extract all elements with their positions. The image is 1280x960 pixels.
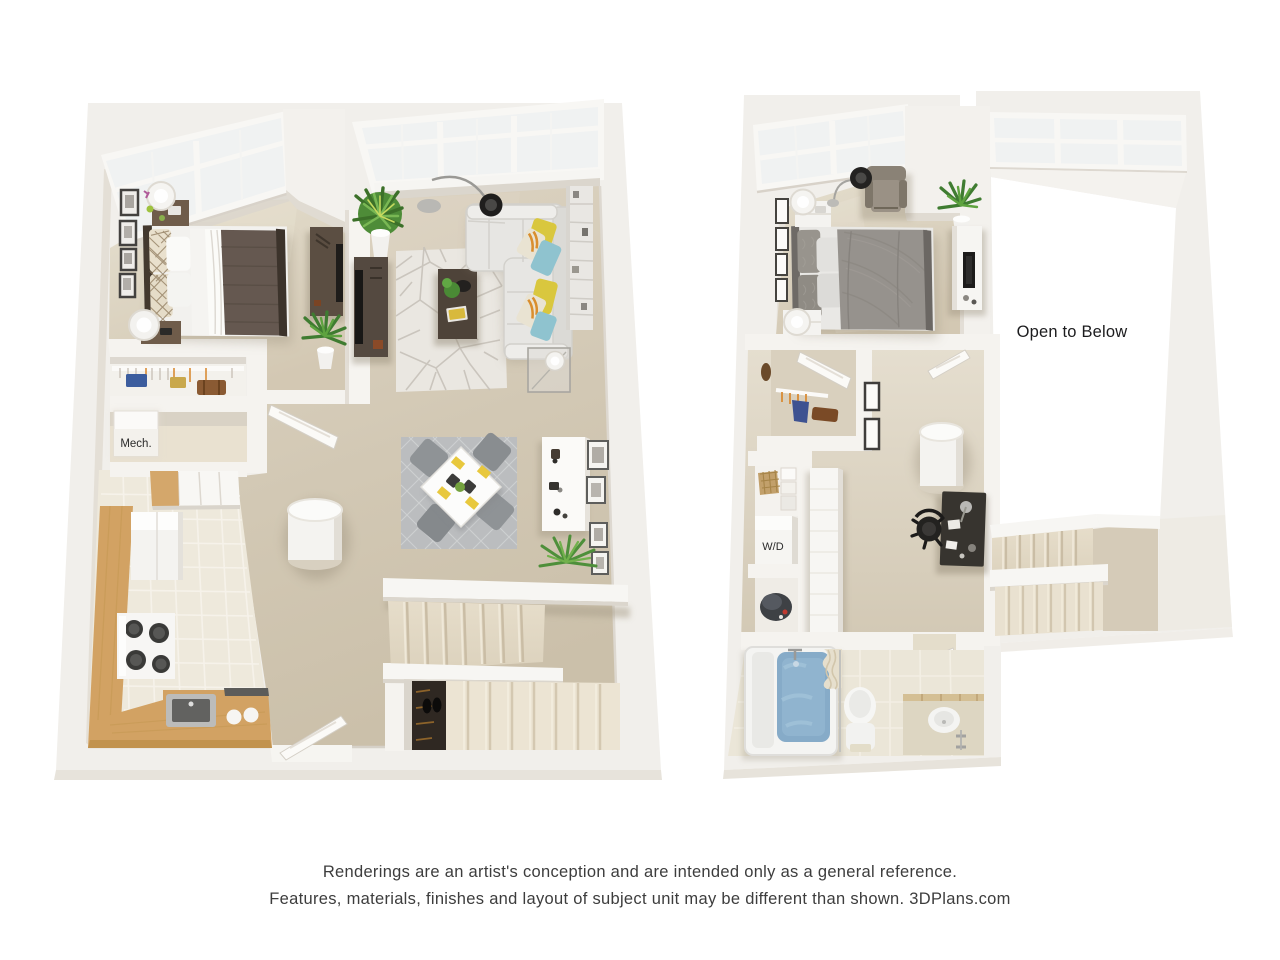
svg-text:Mech.: Mech. [120,438,151,450]
svg-text:Renderings are an artist's con: Renderings are an artist's conception an… [323,863,957,881]
svg-text:Open to Below: Open to Below [1017,323,1128,341]
svg-text:W/D: W/D [762,541,783,553]
svg-text:Features, materials, finishes: Features, materials, finishes and layout… [269,890,1010,908]
